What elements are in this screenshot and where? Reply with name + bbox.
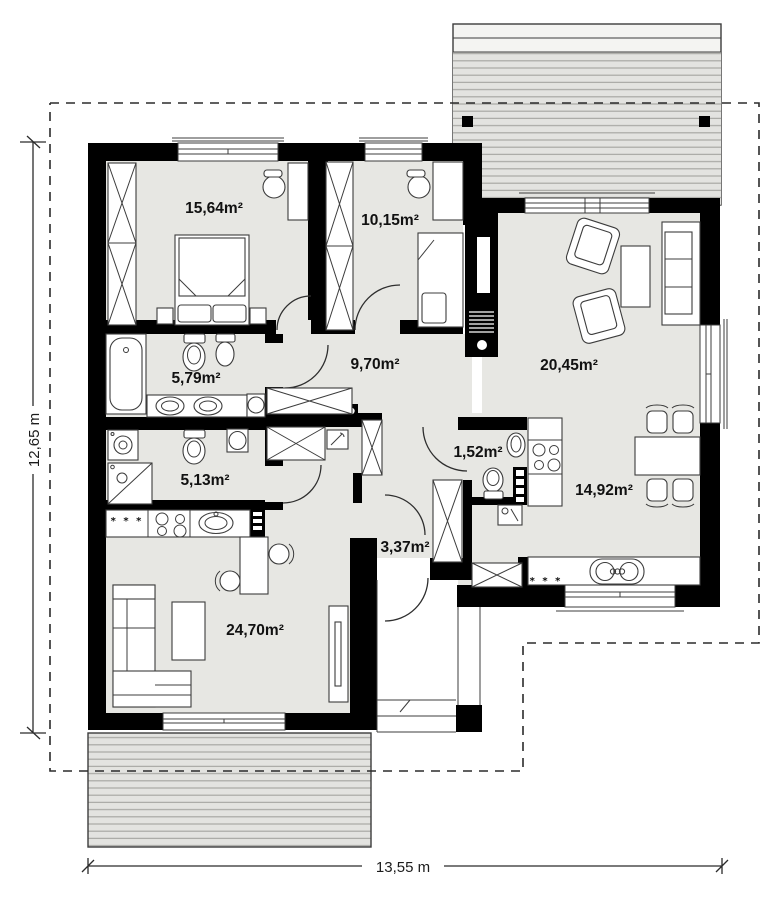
wc-toilet <box>483 468 503 499</box>
label-entrance-hall: 3,37m² <box>380 539 429 556</box>
window-family-south <box>163 713 285 730</box>
window-bedroom-main <box>172 138 284 161</box>
toilet-bathroom <box>183 334 205 371</box>
wardrobe-bedroom-second <box>326 162 353 330</box>
basin-utility <box>227 429 248 452</box>
bathtub <box>106 334 146 414</box>
vanity-double-sink <box>147 395 247 417</box>
floor-plan-page: 15,64m² 10,15m² 9,70m² 5,79m² 5,13m² 1,5… <box>0 0 784 900</box>
closet-b <box>267 427 325 460</box>
dimension-vertical-label: 12,65 m <box>26 413 43 467</box>
window-kitchen-south <box>556 585 684 611</box>
terrace-north-boards <box>453 52 721 205</box>
hand-basin-hall <box>327 430 348 449</box>
toilet-utility <box>183 430 205 464</box>
wall-bedroom-east <box>463 143 482 225</box>
terrace-post-left <box>462 116 473 127</box>
window-bedroom-second <box>359 138 428 161</box>
fireplace <box>465 213 498 357</box>
label-wc: 1,52m² <box>453 444 502 461</box>
nightstand-left <box>157 308 173 324</box>
label-kitchen: 14,92m² <box>575 482 633 499</box>
coffee-table-living <box>621 246 650 307</box>
fireplace-vent <box>477 340 487 350</box>
door-opening-bathroom <box>265 343 283 387</box>
closet-d <box>433 480 462 562</box>
terrace-north <box>453 24 721 205</box>
shower <box>108 463 152 504</box>
chair-bedroom-main <box>263 170 285 198</box>
wardrobe-bedroom-main <box>108 163 136 325</box>
appliance-marks-kitchen: * * * <box>530 576 563 587</box>
terrace-south <box>88 733 371 847</box>
coffee-table-family <box>172 602 205 660</box>
single-bed <box>418 233 463 327</box>
wall-bath-utility <box>106 417 265 430</box>
door-opening-bedroom-main <box>276 320 311 334</box>
label-family-room: 24,70m² <box>226 622 284 639</box>
label-living-room: 20,45m² <box>540 357 598 374</box>
porch-step-tick <box>400 700 410 712</box>
wall-hall-stub <box>353 473 362 503</box>
wall-porch-west <box>350 538 377 730</box>
door-opening-utility <box>265 466 283 502</box>
label-bathroom: 5,79m² <box>171 370 220 387</box>
window-east-living <box>700 319 727 429</box>
dimension-horizontal-label: 13,55 m <box>376 859 430 876</box>
bidet <box>216 334 235 366</box>
desk-bedroom-main <box>288 163 308 220</box>
sofa <box>662 222 700 325</box>
appliance-marks-family: * * * <box>111 516 144 527</box>
wall-wc-north <box>458 417 527 430</box>
terrace-post-right <box>699 116 710 127</box>
door-opening-bedroom-second <box>355 320 400 334</box>
wc-basin <box>507 433 525 457</box>
tv-unit <box>329 606 348 702</box>
side-basin <box>247 394 265 417</box>
fireplace-panel <box>477 237 490 293</box>
washing-machine <box>108 430 138 460</box>
label-utility: 5,13m² <box>180 472 229 489</box>
label-hallway: 9,70m² <box>350 356 399 373</box>
floor-drain <box>498 505 522 525</box>
wall-north <box>88 143 482 161</box>
closet-c <box>362 420 382 475</box>
wall-west <box>88 143 106 730</box>
closet-e <box>472 563 522 587</box>
label-bedroom-second: 10,15m² <box>361 212 419 229</box>
dimension-vertical: 12,65 m <box>20 136 46 739</box>
floor-plan-drawing: 15,64m² 10,15m² 9,70m² 5,79m² 5,13m² 1,5… <box>0 0 784 900</box>
nightstand-right <box>250 308 266 324</box>
door-opening-entrance <box>377 558 430 580</box>
double-bed <box>175 235 249 325</box>
label-bedroom-main: 15,64m² <box>185 200 243 217</box>
porch-column <box>456 705 482 732</box>
tall-cabinet <box>513 467 527 504</box>
kitchen-counter-west <box>528 418 562 506</box>
terrace-south-deck <box>88 733 371 847</box>
wall-closet-east <box>463 480 472 563</box>
porch-edge-lines <box>458 607 480 705</box>
porch-steps <box>377 580 456 732</box>
closet-a <box>267 388 352 414</box>
desk-bedroom-second <box>433 162 463 220</box>
door-arc-front-door <box>385 578 428 621</box>
dimension-horizontal: 13,55 m <box>82 858 728 876</box>
